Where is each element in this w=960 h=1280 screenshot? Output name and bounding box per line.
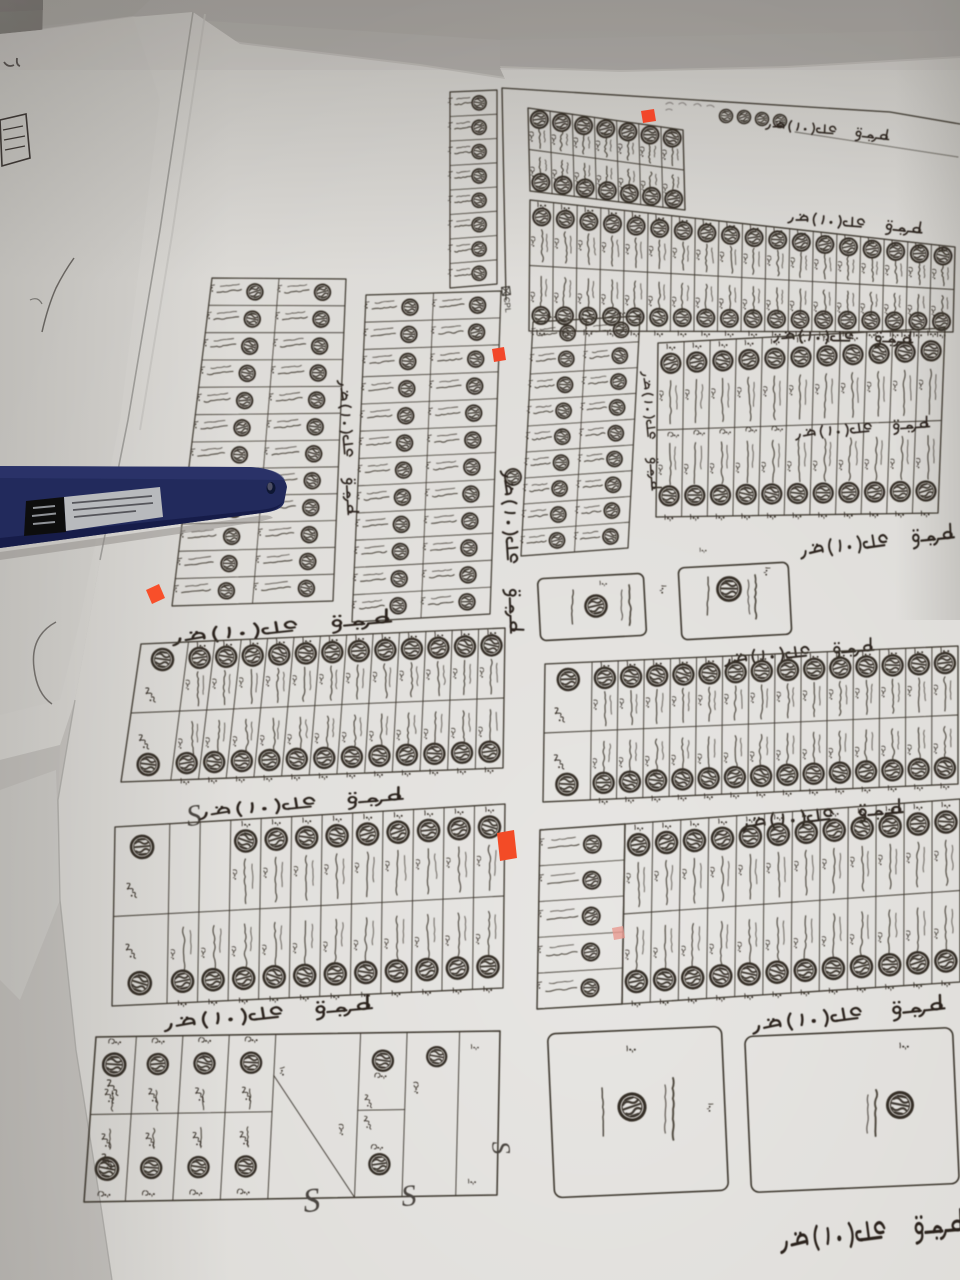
svg-text:S: S [486,1140,516,1155]
